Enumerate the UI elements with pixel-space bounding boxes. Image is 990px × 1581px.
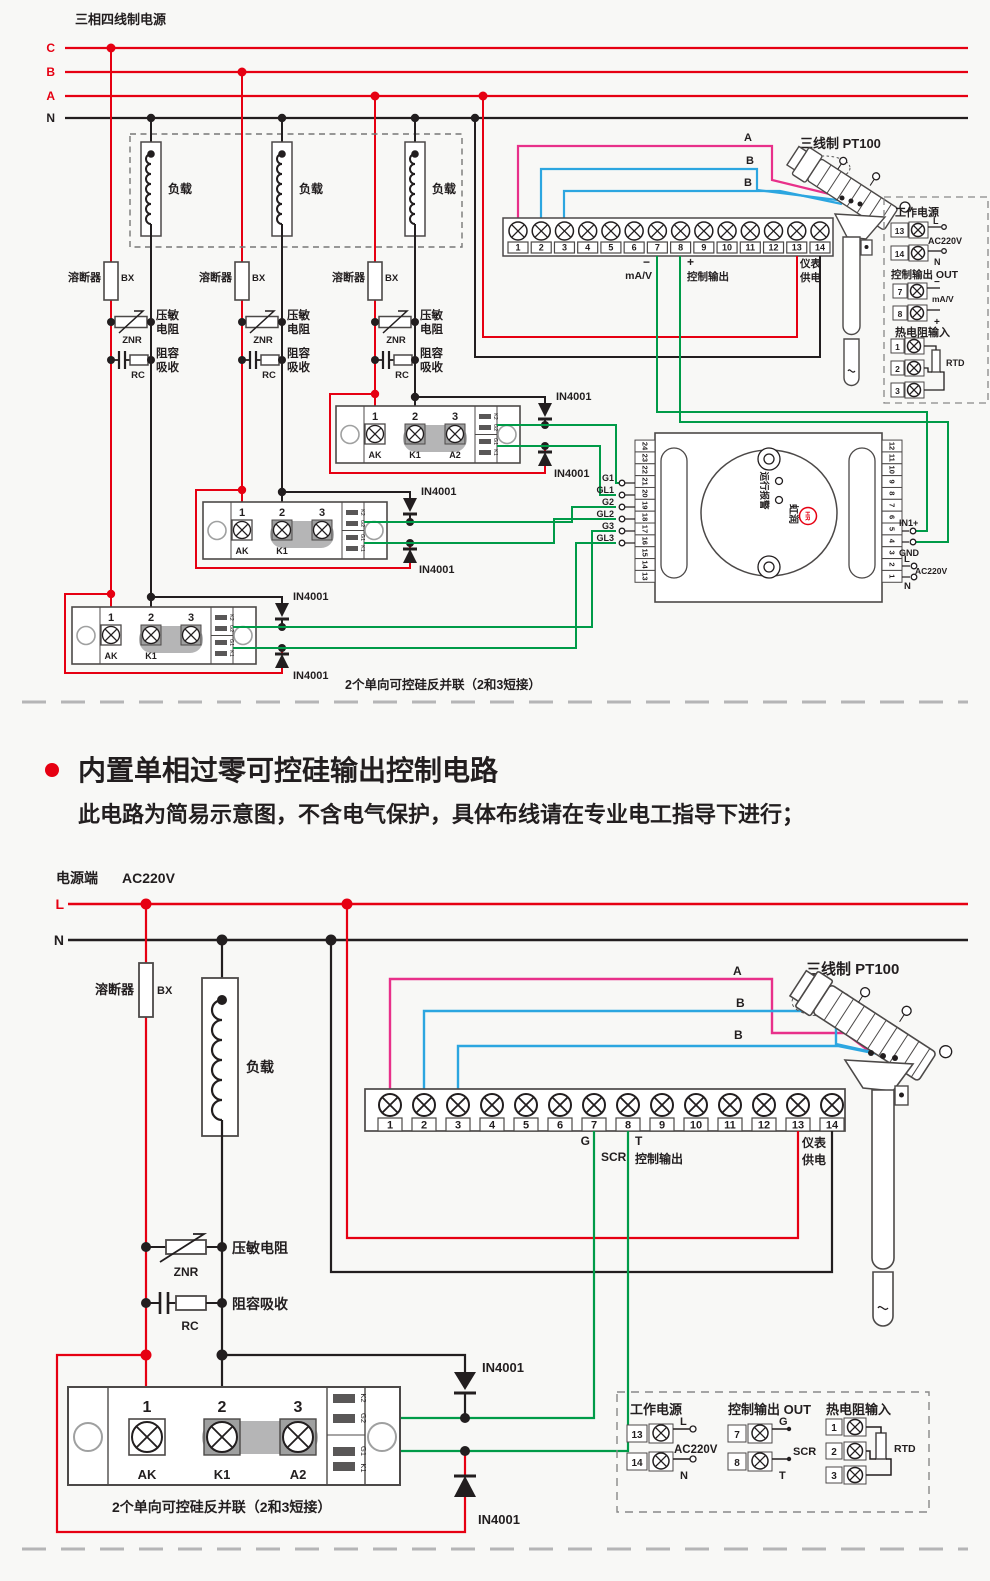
controller-terminal-13: 13 xyxy=(635,570,655,582)
terminal-13: 13 xyxy=(786,1094,810,1132)
scr3-diode2-label: IN4001 xyxy=(293,670,328,682)
screw-terminal-icon xyxy=(912,247,925,260)
out-unit-label: mA/V xyxy=(625,270,652,282)
bottom-rc: RC xyxy=(181,1319,199,1333)
bottom-varistor-label: 压敏电阻 xyxy=(232,1240,288,1256)
znr-3: ZNR xyxy=(386,335,406,346)
svg-text:13: 13 xyxy=(792,1120,804,1132)
controller-terminal-8: 8 xyxy=(882,487,902,499)
meter-power-2: 供电 xyxy=(799,271,821,284)
screw-terminal-icon xyxy=(848,1468,863,1483)
svg-text:8: 8 xyxy=(678,243,683,253)
controller-terminal-18: 18 xyxy=(635,511,655,523)
bmod-side-k1: K1 xyxy=(359,1463,368,1472)
svg-text:7: 7 xyxy=(655,243,660,253)
svg-text:12: 12 xyxy=(758,1120,770,1132)
bottom-snubber-label: 阻容吸收 xyxy=(232,1296,289,1312)
screw-terminal-icon xyxy=(911,307,924,320)
screw-terminal-icon xyxy=(912,224,925,237)
screw-terminal-icon xyxy=(752,1425,768,1441)
svg-text:5: 5 xyxy=(608,243,613,253)
svg-text:2: 2 xyxy=(421,1120,427,1132)
legend-bot-ac: AC220V xyxy=(674,1444,718,1456)
svg-text:8: 8 xyxy=(888,491,897,495)
svg-text:10: 10 xyxy=(722,243,732,253)
bullet-icon xyxy=(45,763,59,777)
scr2-diode2-label: IN4001 xyxy=(419,564,454,576)
bottom-meter-2: 供电 xyxy=(801,1152,826,1167)
svg-text:7: 7 xyxy=(591,1120,597,1132)
svg-text:11: 11 xyxy=(724,1120,736,1132)
bottom-load-label: 负载 xyxy=(246,1059,274,1075)
terminal-11: 11 xyxy=(740,222,760,253)
controller-terminal-19: 19 xyxy=(635,499,655,511)
svg-text:7: 7 xyxy=(888,503,897,507)
gate-g2: G2 xyxy=(602,497,614,507)
scr-module-2: IN4001 IN4001 xyxy=(196,486,456,576)
wiring-diagram-page: 三相四线制电源 C B A N xyxy=(0,0,990,1581)
svg-text:19: 19 xyxy=(641,501,650,509)
varistor-2-l2: 电阻 xyxy=(287,322,310,336)
svg-text:5: 5 xyxy=(888,527,897,531)
terminal-1: 1 xyxy=(508,222,528,253)
fuse-3-code: BX xyxy=(385,273,399,284)
screw-terminal-icon xyxy=(908,340,921,353)
bottom-znr: ZNR xyxy=(174,1265,199,1279)
bottom-out-name: 控制输出 xyxy=(635,1151,683,1166)
legend-top-14: 14 xyxy=(895,249,905,259)
bottom-scr-label: SCR xyxy=(601,1150,627,1164)
varistor-rc-col3: ZNR 压敏 电阻 RC 阻容 吸收 xyxy=(371,308,443,381)
svg-text:11: 11 xyxy=(888,454,897,462)
controller-left-terminals: 242322212019181716151413 xyxy=(635,440,655,582)
scr-module-bottom: 1 2 3 AK K1 A2 K2 G2 G1 K1 2个单向可控硅反并联（2和… xyxy=(57,1350,524,1533)
legend-bot-1: 1 xyxy=(831,1423,837,1434)
controller-terminal-21: 21 xyxy=(635,476,655,488)
controller-terminal-1: 1 xyxy=(882,570,902,582)
legend-top-3: 3 xyxy=(895,386,900,396)
bmod-t2-name: K1 xyxy=(214,1467,231,1482)
scr1-diode1-label: IN4001 xyxy=(556,391,591,403)
section-subtitle: 此电路为简易示意图，不含电气保护，具体布线请在专业电工指导下进行； xyxy=(78,802,804,827)
screw-terminal-icon xyxy=(207,1422,237,1452)
scr1-t3-name: A2 xyxy=(449,450,461,460)
bottom-power-voltage: AC220V xyxy=(122,870,176,886)
controller-terminal-11: 11 xyxy=(882,452,902,464)
svg-text:9: 9 xyxy=(888,479,897,483)
legend-bot-rtd-title: 热电阻输入 xyxy=(826,1402,891,1417)
bottom-fuse-label: 溶断器 xyxy=(95,982,135,997)
svg-text:3: 3 xyxy=(562,243,567,253)
terminal-4: 4 xyxy=(480,1094,504,1132)
terminal-3: 3 xyxy=(446,1094,470,1132)
bottom-g-label: G xyxy=(581,1134,590,1148)
svg-text:2: 2 xyxy=(539,243,544,253)
svg-text:5: 5 xyxy=(523,1120,529,1132)
svg-text:23: 23 xyxy=(641,454,650,462)
terminal-10: 10 xyxy=(717,222,737,253)
svg-text:15: 15 xyxy=(641,548,650,556)
legend-bot-3: 3 xyxy=(831,1471,837,1482)
svg-text:17: 17 xyxy=(641,525,650,533)
legend-top-ac: AC220V xyxy=(928,236,962,246)
svg-text:18: 18 xyxy=(641,513,650,521)
screw-terminal-icon xyxy=(848,1420,863,1435)
legend-bot-rtd: RTD xyxy=(894,1443,916,1455)
legend-top-l: L xyxy=(933,216,939,226)
controller-terminal-24: 24 xyxy=(635,440,655,452)
section-heading: 内置单相过零可控硅输出控制电路 此电路为简易示意图，不含电气保护，具体布线请在专… xyxy=(45,754,804,827)
svg-text:9: 9 xyxy=(659,1120,665,1132)
bmod-t2-num: 2 xyxy=(218,1399,227,1416)
terminal-14: 14 xyxy=(820,1094,844,1132)
bottom-n-label: N xyxy=(54,932,64,948)
terminal-6: 6 xyxy=(548,1094,572,1132)
controller-terminal-22: 22 xyxy=(635,464,655,476)
screw-terminal-icon xyxy=(848,1444,863,1459)
legend-bot-t: T xyxy=(779,1470,786,1482)
svg-text:13: 13 xyxy=(641,572,650,580)
terminal-8: 8 xyxy=(671,222,691,253)
controller-terminal-9: 9 xyxy=(882,476,902,488)
controller-terminal-16: 16 xyxy=(635,535,655,547)
out-minus-label: − xyxy=(643,255,650,269)
svg-text:11: 11 xyxy=(746,243,756,253)
load-2-label: 负载 xyxy=(299,181,323,196)
bottom-power-title: 电源端 xyxy=(56,870,98,886)
bmod-side-k2: K2 xyxy=(359,1393,368,1402)
legend-bot-13: 13 xyxy=(631,1430,643,1441)
legend-top-1: 1 xyxy=(895,342,900,352)
snubber-1-l2: 吸收 xyxy=(156,360,179,374)
terminal-13: 13 xyxy=(787,222,807,253)
controller-right-terminals: 121110987654321 xyxy=(882,440,902,582)
phase-a-label: A xyxy=(46,89,55,103)
controller-terminal-14: 14 xyxy=(635,559,655,571)
load-3-label: 负载 xyxy=(432,181,456,196)
legend-top-7: 7 xyxy=(898,287,903,297)
legend-bot-n: N xyxy=(680,1470,688,1482)
terminal-5: 5 xyxy=(601,222,621,253)
wire-b2-label-top: B xyxy=(744,177,752,189)
controller-terminal-12: 12 xyxy=(882,440,902,452)
phase-bus: C B A N xyxy=(46,41,968,125)
terminal-14: 14 xyxy=(810,222,830,253)
fuse-1-label: 溶断器 xyxy=(68,270,102,284)
legend-bot-l: L xyxy=(680,1416,687,1428)
bottom-diode1-label: IN4001 xyxy=(482,1360,524,1375)
svg-text:14: 14 xyxy=(815,243,825,253)
controller-terminal-23: 23 xyxy=(635,452,655,464)
znr-1: ZNR xyxy=(122,335,142,346)
fuses: 溶断器 BX 溶断器 BX 溶断器 BX xyxy=(68,262,399,300)
snubber-2-l1: 阻容 xyxy=(287,346,310,360)
bmod-t1-num: 1 xyxy=(143,1399,152,1416)
bmod-t1-name: AK xyxy=(138,1467,157,1482)
terminal-12: 12 xyxy=(752,1094,776,1132)
svg-text:14: 14 xyxy=(826,1120,839,1132)
scr2-diode1-label: IN4001 xyxy=(421,486,456,498)
alarm-led-label: 报警 xyxy=(758,490,770,510)
bottom-varistor: ZNR 压敏电阻 xyxy=(141,1234,288,1279)
varistor-1-l1: 压敏 xyxy=(156,308,179,322)
fuse-3-label: 溶断器 xyxy=(332,270,366,284)
controller-ac-label: AC220V xyxy=(915,566,947,576)
controller-terminal-2: 2 xyxy=(882,559,902,571)
terminal-2: 2 xyxy=(531,222,551,253)
legend-bot-7: 7 xyxy=(734,1430,740,1441)
gate-gl1: GL1 xyxy=(596,485,614,495)
svg-text:6: 6 xyxy=(557,1120,563,1132)
terminal-9: 9 xyxy=(650,1094,674,1132)
bmod-t3-num: 3 xyxy=(294,1399,303,1416)
svg-text:1: 1 xyxy=(515,243,520,253)
scr-module-3: IN4001 IN4001 xyxy=(65,590,328,682)
snubber-2-l2: 吸收 xyxy=(287,360,310,374)
terminal-11: 11 xyxy=(718,1094,742,1132)
bmod-side-g2: G2 xyxy=(359,1413,368,1423)
controller-n-label: N xyxy=(904,581,911,592)
screw-terminal-icon xyxy=(653,1453,669,1469)
terminal-7: 7 xyxy=(647,222,667,253)
wire-b1-label-top: B xyxy=(746,155,754,167)
wire-b1-label-bottom: B xyxy=(736,996,745,1010)
controller-terminal-17: 17 xyxy=(635,523,655,535)
fuse-2-label: 溶断器 xyxy=(199,270,233,284)
svg-text:13: 13 xyxy=(792,243,802,253)
legend-bot-out-title: 控制输出 OUT xyxy=(728,1402,811,1417)
svg-text:1: 1 xyxy=(888,574,897,578)
bottom-snubber: RC 阻容吸收 xyxy=(141,1292,289,1333)
legend-top-13: 13 xyxy=(895,226,905,236)
screw-terminal-icon xyxy=(283,1422,313,1452)
legend-bot-power-title: 工作电源 xyxy=(630,1402,682,1417)
terminal-10: 10 xyxy=(684,1094,708,1132)
bottom-fuse-code: BX xyxy=(157,985,173,997)
wire-a-label-bottom: A xyxy=(733,964,742,978)
snubber-3-l2: 吸收 xyxy=(420,360,443,374)
svg-text:8: 8 xyxy=(625,1120,631,1132)
snubber-3-l1: 阻容 xyxy=(420,346,443,360)
out-name-label: 控制输出 xyxy=(687,270,729,283)
wire-b2-label-bottom: B xyxy=(734,1028,743,1042)
loads: 负载 负载 负载 xyxy=(130,114,479,247)
bmod-side-g1: G1 xyxy=(359,1446,368,1456)
legend-top-unit: mA/V xyxy=(932,294,954,304)
varistor-2-l1: 压敏 xyxy=(287,308,310,322)
screw-terminal-icon xyxy=(653,1425,669,1441)
brand-label: 虹润 xyxy=(787,504,800,524)
legend-top-8: 8 xyxy=(898,309,903,319)
meter-power-1: 仪表 xyxy=(799,257,821,270)
load-1-label: 负载 xyxy=(168,181,192,196)
legend-bot-g: G xyxy=(779,1416,788,1428)
controller-l-label: L xyxy=(904,554,910,565)
screw-terminal-icon xyxy=(908,384,921,397)
svg-text:3: 3 xyxy=(455,1120,461,1132)
svg-text:12: 12 xyxy=(769,243,779,253)
screw-terminal-icon xyxy=(132,1422,162,1452)
phase-n-label: N xyxy=(46,111,55,125)
varistor-3-l2: 电阻 xyxy=(420,322,443,336)
gate-g3: G3 xyxy=(602,521,614,531)
scr-module-1: A2 IN4001 IN4001 xyxy=(330,390,591,480)
screw-terminal-icon xyxy=(911,285,924,298)
varistor-1-l2: 电阻 xyxy=(156,322,179,336)
svg-text:10: 10 xyxy=(690,1120,702,1132)
top-scr-caption: 2个单向可控硅反并联（2和3短接） xyxy=(345,677,541,692)
rc-3: RC xyxy=(395,370,409,381)
bmod-t3-name: A2 xyxy=(290,1467,307,1482)
svg-text:21: 21 xyxy=(641,477,650,485)
phase-c-label: C xyxy=(46,41,55,55)
legend-top-n: N xyxy=(934,257,941,267)
rc-1: RC xyxy=(131,370,145,381)
svg-text:9: 9 xyxy=(701,243,706,253)
terminal-2: 2 xyxy=(412,1094,436,1132)
legend-bot-scr: SCR xyxy=(793,1446,816,1458)
terminal-4: 4 xyxy=(578,222,598,253)
terminal-1: 1 xyxy=(378,1094,402,1132)
controller-terminal-10: 10 xyxy=(882,464,902,476)
znr-2: ZNR xyxy=(253,335,273,346)
screw-terminal-icon xyxy=(752,1453,768,1469)
svg-text:4: 4 xyxy=(489,1120,496,1132)
legend-top-out-title: 控制输出 OUT xyxy=(891,268,959,281)
varistor-rc-col2: ZNR 压敏 电阻 RC 阻容 吸收 xyxy=(238,308,310,381)
svg-text:24: 24 xyxy=(641,442,650,451)
varistor-rc-col1: ZNR 压敏 电阻 RC 阻容 吸收 xyxy=(107,308,179,381)
legend-bot-2: 2 xyxy=(831,1447,837,1458)
screw-terminal-icon xyxy=(908,362,921,375)
snubber-1-l1: 阻容 xyxy=(156,346,179,360)
bottom-meter-1: 仪表 xyxy=(801,1135,827,1150)
varistor-3-l1: 压敏 xyxy=(420,308,443,322)
controller-terminal-20: 20 xyxy=(635,487,655,499)
controller-terminal-15: 15 xyxy=(635,547,655,559)
controller-right-labels: IN1+ GND L AC220V N xyxy=(899,518,947,592)
gate-gl3: GL3 xyxy=(596,533,614,543)
run-led-label: 运行 xyxy=(758,471,770,491)
svg-text:20: 20 xyxy=(641,489,650,497)
controller-terminal-7: 7 xyxy=(882,499,902,511)
section-title: 内置单相过零可控硅输出控制电路 xyxy=(78,754,499,786)
terminal-6: 6 xyxy=(624,222,644,253)
wire-a-label-top: A xyxy=(744,132,752,144)
top-diagram: 三相四线制电源 C B A N xyxy=(46,12,988,692)
legend-top-rtd: RTD xyxy=(946,358,965,368)
scr1-diode2-label: IN4001 xyxy=(554,468,589,480)
bottom-l-label: L xyxy=(55,896,64,912)
svg-text:3: 3 xyxy=(888,551,897,555)
legend-top-rtd-title: 热电阻输入 xyxy=(895,325,950,339)
in1-label: IN1+ xyxy=(899,518,918,528)
bottom-diode2-label: IN4001 xyxy=(478,1512,520,1527)
svg-text:6: 6 xyxy=(888,515,897,519)
terminal-9: 9 xyxy=(694,222,714,253)
legend-bot-14: 14 xyxy=(631,1458,643,1469)
svg-text:4: 4 xyxy=(585,243,590,253)
terminal-8: 8 xyxy=(616,1094,640,1132)
pt100-sensor-bottom: 三线制 PT100 A B B xyxy=(733,949,960,1326)
brand-logo-text: HR xyxy=(804,511,811,521)
svg-text:1: 1 xyxy=(387,1120,393,1132)
bottom-t-label: T xyxy=(635,1134,643,1148)
legend-top-2: 2 xyxy=(895,364,900,374)
bottom-scr-caption: 2个单向可控硅反并联（2和3短接） xyxy=(112,1499,331,1515)
svg-text:14: 14 xyxy=(641,560,650,569)
out-plus-label: + xyxy=(687,255,694,269)
bottom-diagram: 电源端 AC220V L N 溶断器 BX 负载 ZNR 压敏电阻 xyxy=(54,870,968,1532)
terminal-12: 12 xyxy=(764,222,784,253)
phase-b-label: B xyxy=(46,65,55,79)
trigger-controller: 运行 报警 虹润 HR 242322212019181716151413 121… xyxy=(596,433,947,602)
fuse-1-code: BX xyxy=(121,273,135,284)
svg-text:16: 16 xyxy=(641,537,650,545)
svg-text:10: 10 xyxy=(888,466,897,474)
svg-text:6: 6 xyxy=(632,243,637,253)
gate-g1: G1 xyxy=(602,473,614,483)
legend-top-minus: − xyxy=(934,277,940,288)
legend-box-bottom: 工作电源 13 L AC220V 14 N 控制输出 OUT 7 G SCR 8… xyxy=(617,1392,929,1512)
scr3-diode1-label: IN4001 xyxy=(293,591,328,603)
terminal-7: 7 xyxy=(582,1094,606,1132)
rc-2: RC xyxy=(262,370,276,381)
fuse-2-code: BX xyxy=(252,273,266,284)
terminal-5: 5 xyxy=(514,1094,538,1132)
legend-bot-8: 8 xyxy=(734,1458,740,1469)
gate-gl2: GL2 xyxy=(596,509,614,519)
terminal-3: 3 xyxy=(554,222,574,253)
svg-text:2: 2 xyxy=(888,562,897,566)
svg-text:22: 22 xyxy=(641,466,650,474)
top-bus-title: 三相四线制电源 xyxy=(75,12,166,27)
controller-terminal-4: 4 xyxy=(882,535,902,547)
svg-text:12: 12 xyxy=(888,442,897,450)
legend-box-top: 工作电源 13 L AC220V 14 N 控制输出 OUT 7 − mA/V … xyxy=(884,197,988,403)
